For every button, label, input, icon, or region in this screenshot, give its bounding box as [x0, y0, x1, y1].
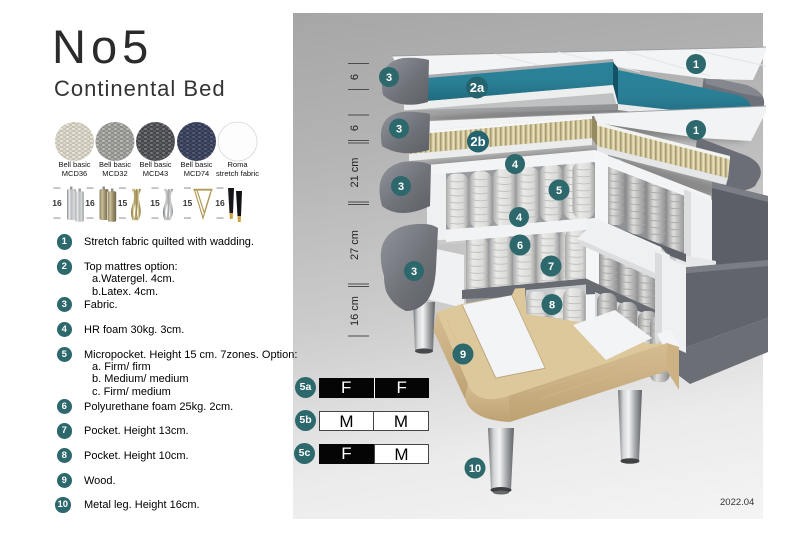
svg-text:4: 4 — [512, 159, 519, 171]
svg-text:3: 3 — [396, 124, 402, 136]
svg-text:21 cm: 21 cm — [349, 158, 361, 188]
svg-text:7: 7 — [548, 261, 554, 273]
svg-text:2a: 2a — [470, 80, 485, 95]
svg-text:1: 1 — [693, 59, 699, 71]
svg-text:3: 3 — [411, 266, 417, 278]
svg-text:6: 6 — [349, 74, 361, 80]
svg-text:10: 10 — [469, 463, 481, 475]
svg-text:27 cm: 27 cm — [349, 230, 361, 260]
svg-text:8: 8 — [549, 300, 555, 312]
svg-text:6: 6 — [517, 240, 523, 252]
svg-text:3: 3 — [386, 72, 392, 84]
svg-text:9: 9 — [460, 349, 466, 361]
svg-text:16 cm: 16 cm — [349, 296, 361, 326]
svg-text:4: 4 — [516, 212, 523, 224]
svg-text:5: 5 — [556, 185, 562, 197]
svg-text:2b: 2b — [470, 134, 485, 149]
svg-text:1: 1 — [693, 125, 699, 137]
svg-text:3: 3 — [398, 181, 404, 193]
svg-text:6: 6 — [349, 125, 361, 131]
